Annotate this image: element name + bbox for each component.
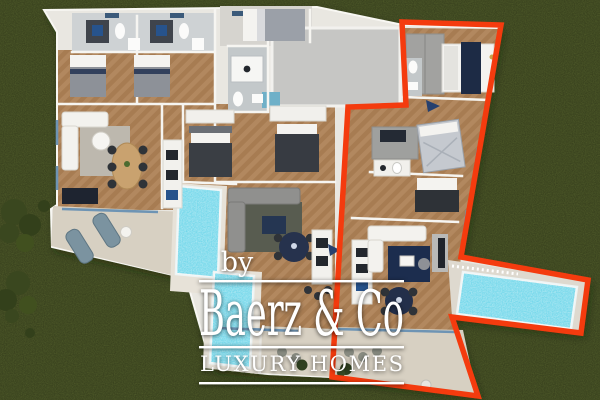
watermark-brand: Baerz & Co [199,277,404,350]
bed-middle-2 [270,106,326,172]
watermark-rule-middle [199,346,404,348]
bed-right-3 [415,178,459,212]
floor-plan-render: by Baerz & Co LUXURY HOMES [0,0,600,400]
watermark-prefix: by [221,247,254,278]
kitchen-left [163,140,182,208]
coffee-table-round [92,132,110,150]
dining-set-middle [274,232,314,262]
bed-twin-1 [70,55,106,97]
shower-middle [231,56,263,82]
bed-top-middle [243,9,305,41]
throw-navy [262,216,286,234]
floor-plan-screenshot: by Baerz & Co LUXURY HOMES [0,0,600,400]
bed-twin-2 [134,55,170,97]
watermark-rule-bottom [199,382,404,384]
tv-wall-right [432,234,448,272]
bed-right-1 [442,42,495,94]
media-console-left [62,188,98,204]
side-table-round [121,227,132,238]
dining-set-left [108,143,148,189]
suite-bed-left [186,110,234,177]
watermark-tagline: LUXURY HOMES [200,352,403,376]
sink-middle [252,94,263,103]
toilet-middle [233,92,243,107]
bed-right-2 [417,119,465,172]
